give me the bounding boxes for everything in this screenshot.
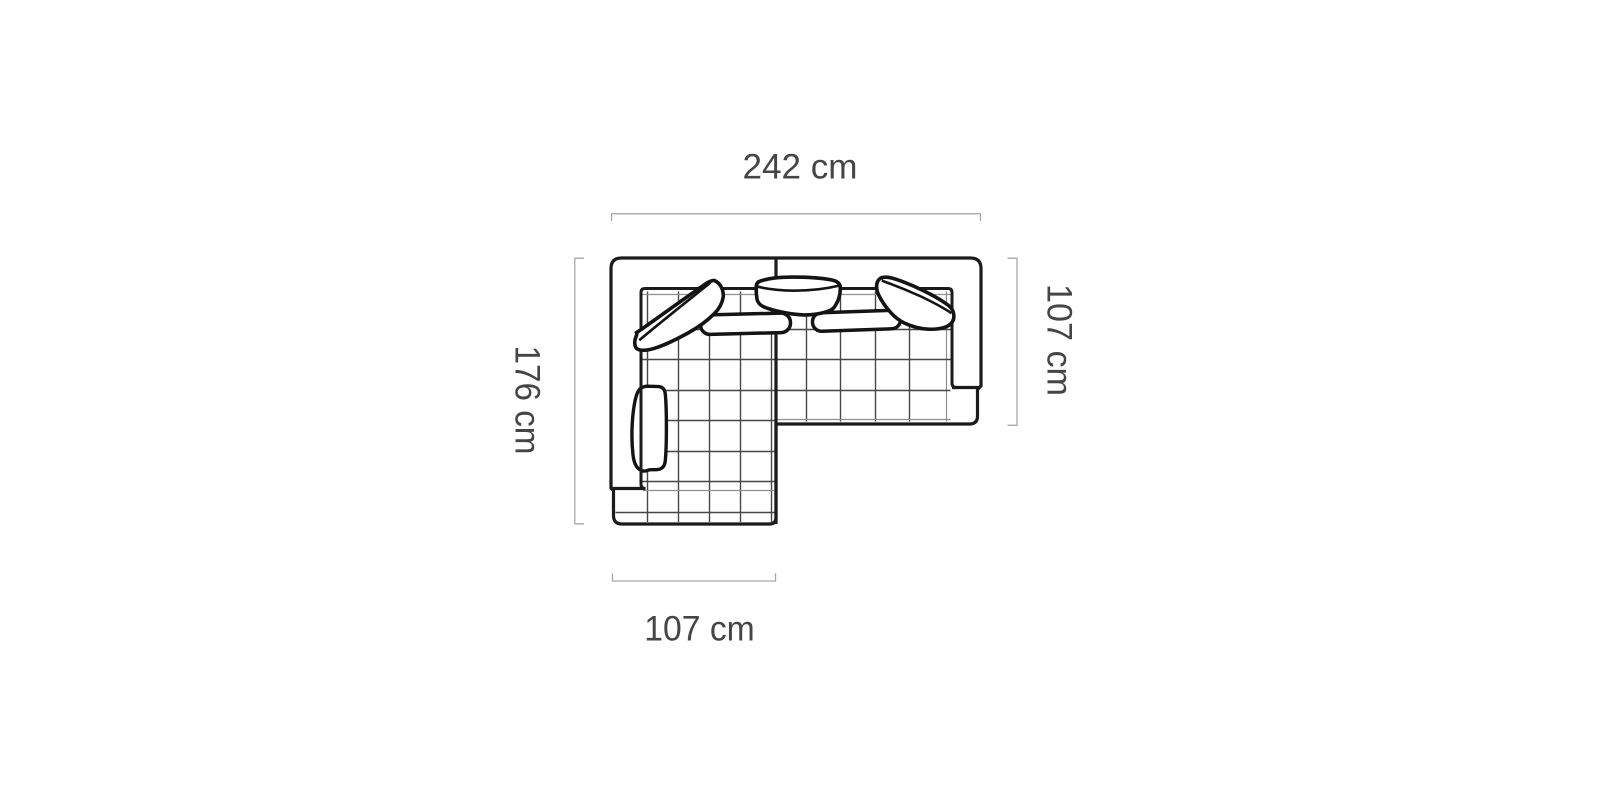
svg-text:176 cm: 176 cm — [508, 346, 548, 455]
svg-text:242 cm: 242 cm — [743, 147, 858, 187]
svg-text:107 cm: 107 cm — [1040, 284, 1080, 396]
svg-text:107 cm: 107 cm — [644, 608, 755, 648]
